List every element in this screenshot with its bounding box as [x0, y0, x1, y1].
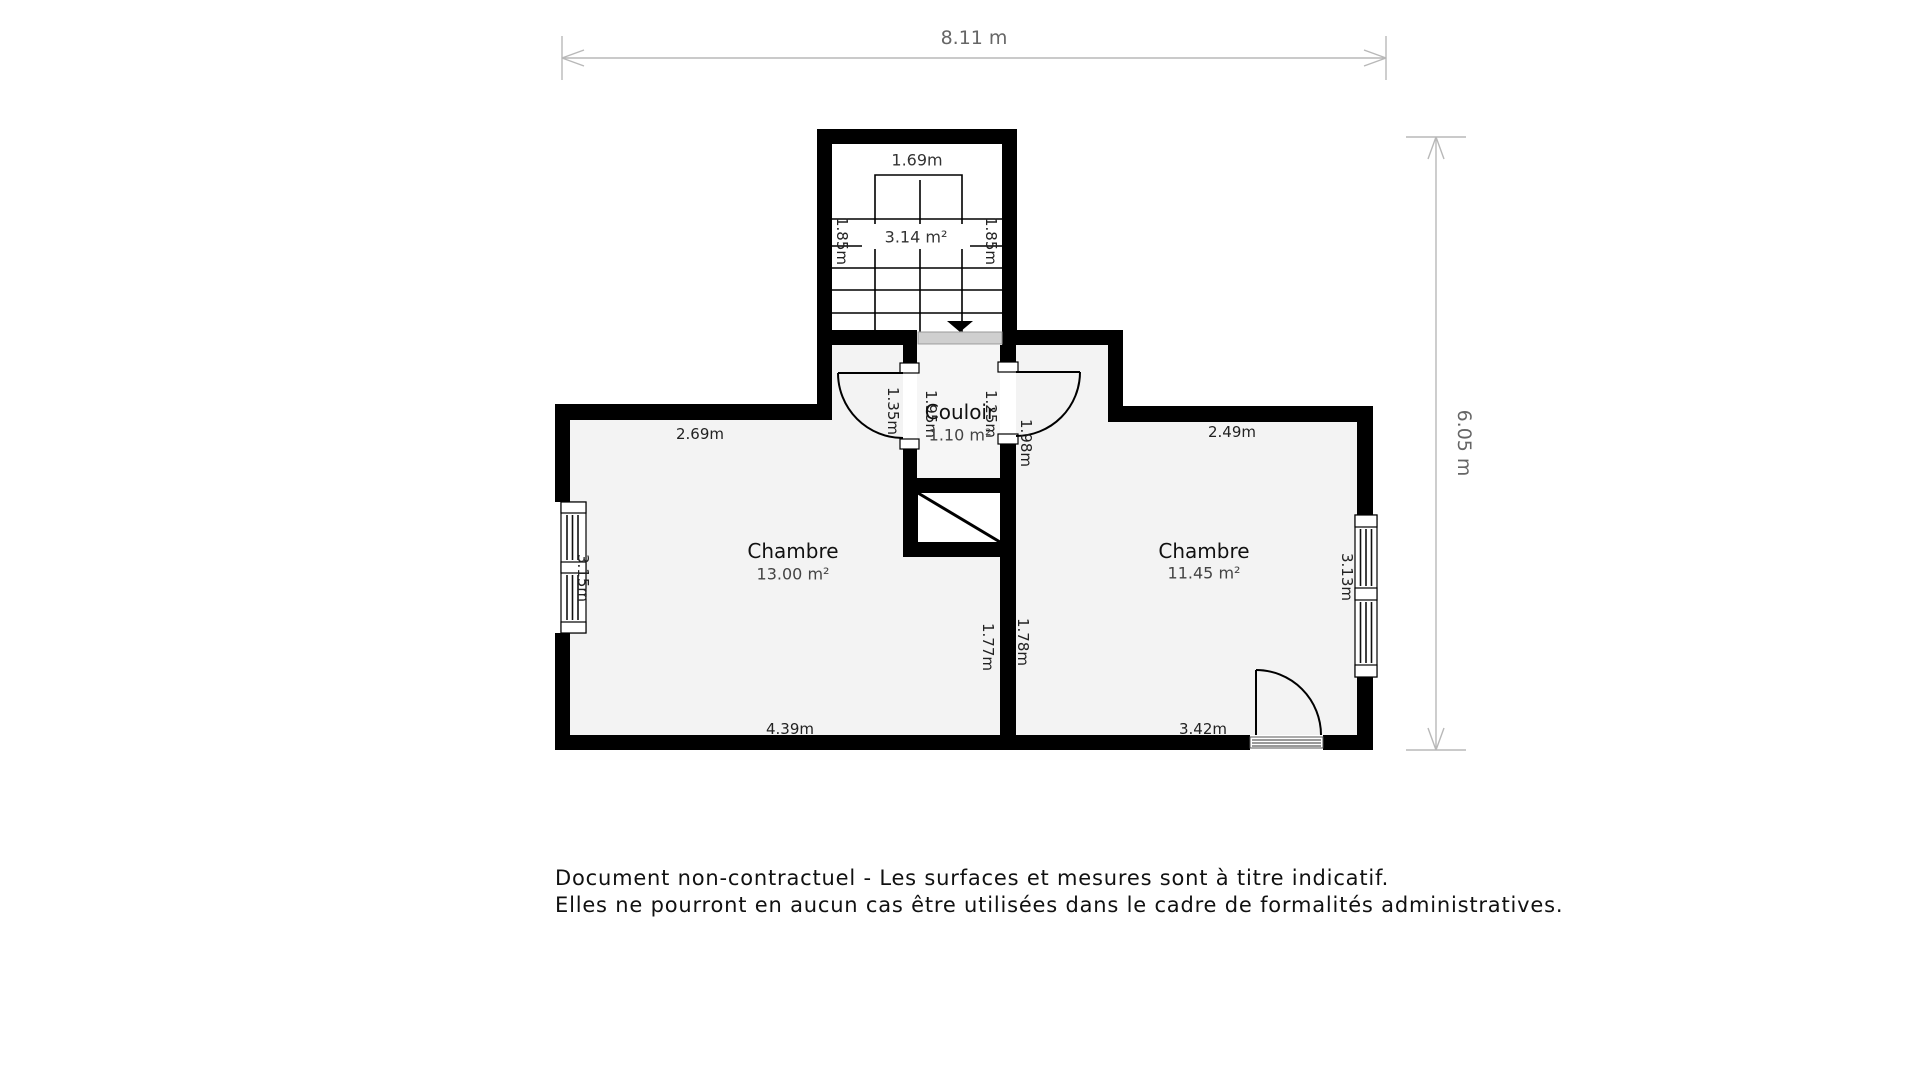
bedroom-left-bottom-measure: 4.39m — [766, 720, 814, 738]
arrowhead-left-icon — [562, 58, 584, 66]
bedroom-left-side-measure: 3.15m — [574, 554, 592, 602]
bedroom-right-area: 11.45 m² — [1168, 564, 1241, 583]
window-jamb — [1355, 588, 1377, 600]
wall-bottom-left — [555, 735, 1250, 750]
wall-stair-left — [817, 129, 832, 345]
arrowhead-down-icon — [1436, 728, 1444, 750]
wall-right-outer-upper — [1357, 406, 1373, 515]
wall-stair-bottom-left — [817, 330, 917, 345]
wall-couloir-left-lower — [903, 449, 917, 478]
arrowhead-down-icon — [1428, 728, 1436, 750]
wall-couloir-left-upper — [903, 345, 917, 363]
jamb — [998, 434, 1018, 444]
wall-shaft-top — [903, 478, 1016, 493]
floor-plan-page: 1.69m 3.14 m² 1.85m 1.85m 1.35m 1.95m 1.… — [0, 0, 1920, 1080]
dimension-right-label: 6.05 m — [1453, 410, 1475, 477]
bedroom-left-name: Chambre — [747, 539, 838, 563]
bedroom-left-top-measure: 2.69m — [676, 425, 724, 443]
arrowhead-up-icon — [1436, 137, 1444, 159]
window-jamb — [1355, 665, 1377, 677]
dimension-right: 6.05 m — [1406, 137, 1475, 750]
bedroom-right-bottom-measure: 3.42m — [1179, 720, 1227, 738]
wall-bedroom-left-top — [555, 404, 832, 420]
entrance-threshold — [1250, 737, 1323, 748]
stair-landing-bar — [918, 332, 1002, 344]
arrowhead-right-icon — [1364, 50, 1386, 58]
window-jamb — [1355, 515, 1377, 527]
wall-bedroom-right-top — [1108, 406, 1373, 422]
footer-line-2: Elles ne pourront en aucun cas être util… — [555, 893, 1563, 917]
wall-stair-right — [1002, 129, 1017, 345]
bedroom-right-side-measure: 3.13m — [1338, 553, 1356, 601]
wall-right-outer-lower — [1357, 677, 1373, 750]
bedroom-right-name: Chambre — [1158, 539, 1249, 563]
wall-left-outer-lower — [555, 633, 570, 750]
couloir-area: 1.10 m² — [929, 426, 992, 445]
arrowhead-up-icon — [1428, 137, 1436, 159]
stair-width-label: 1.69m — [891, 151, 942, 170]
bedroom-left-area: 13.00 m² — [757, 565, 830, 584]
jamb — [900, 439, 919, 449]
window-jamb — [561, 502, 586, 513]
window-jamb — [561, 622, 586, 633]
wall-notch-vertical — [1108, 345, 1123, 406]
arrowhead-right-icon — [1364, 58, 1386, 66]
wall-stair-top — [817, 129, 1017, 144]
jamb — [900, 363, 919, 373]
couloir-measure-135: 1.35m — [884, 387, 902, 435]
stair-area-label: 3.14 m² — [885, 228, 948, 247]
wall-stair-to-right — [1002, 330, 1123, 345]
divider-left-measure: 1.77m — [979, 623, 997, 671]
footer-disclaimer: Document non-contractuel - Les surfaces … — [555, 866, 1563, 917]
divider-right-measure: 1.78m — [1014, 618, 1032, 666]
bedroom-right-top-measure: 2.49m — [1208, 423, 1256, 441]
arrowhead-left-icon — [562, 50, 584, 58]
wall-divider-upper — [1000, 345, 1016, 362]
dimension-top-label: 8.11 m — [941, 27, 1008, 49]
couloir-name: Couloir — [925, 400, 996, 424]
window-right — [1355, 515, 1377, 677]
stair-depth-right-label: 1.85m — [982, 217, 1000, 265]
couloir-measure-198: 1.98m — [1017, 419, 1035, 467]
footer-line-1: Document non-contractuel - Les surfaces … — [555, 866, 1389, 890]
floor-plan-svg: 1.69m 3.14 m² 1.85m 1.85m 1.35m 1.95m 1.… — [0, 0, 1920, 1080]
wall-left-outer-upper — [555, 404, 570, 502]
dimension-top: 8.11 m — [562, 27, 1386, 80]
stair-depth-left-label: 1.85m — [833, 217, 851, 265]
wall-shaft-bottom — [903, 542, 1016, 557]
jamb — [998, 362, 1018, 372]
